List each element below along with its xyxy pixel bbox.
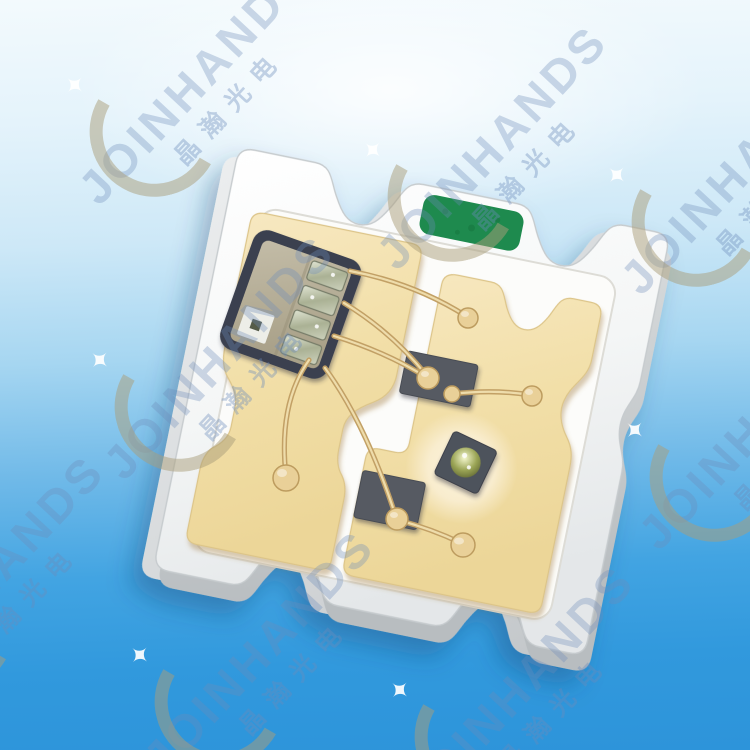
scene: ✦ JOINHANDS 晶瀚光电 ✦ JOINHANDS 晶瀚光电 ✦ JOIN… (0, 0, 750, 750)
package (138, 145, 677, 674)
led-package-render (0, 0, 750, 750)
